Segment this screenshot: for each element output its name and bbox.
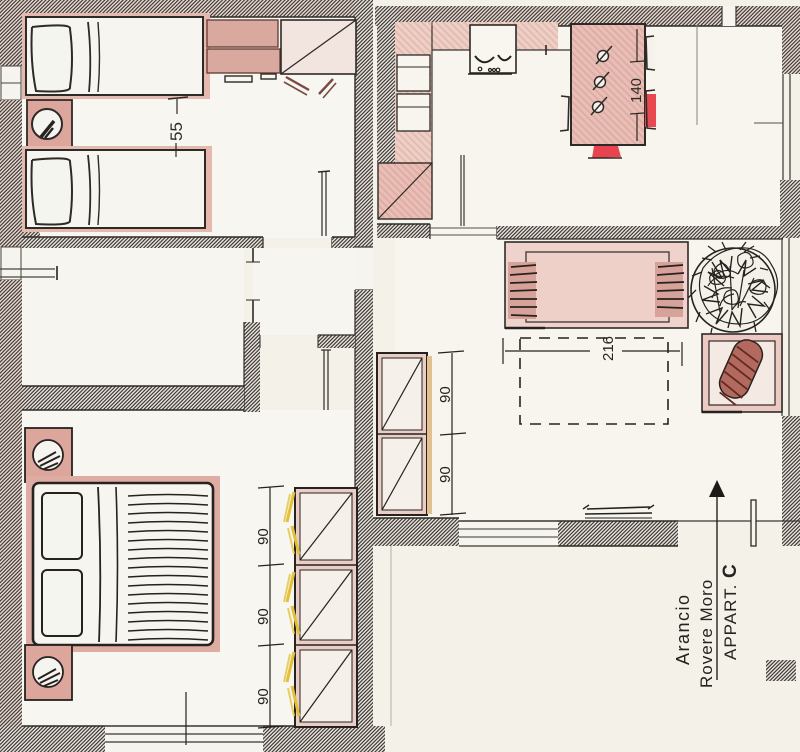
svg-text:APPART. C: APPART. C xyxy=(720,563,741,660)
svg-text:90: 90 xyxy=(255,528,272,545)
svg-text:140: 140 xyxy=(628,78,645,103)
svg-text:90: 90 xyxy=(255,688,272,705)
svg-text:216: 216 xyxy=(600,336,617,361)
svg-text:90: 90 xyxy=(437,466,454,483)
svg-text:Rovere Moro: Rovere Moro xyxy=(697,579,716,688)
svg-text:55: 55 xyxy=(167,122,186,141)
svg-text:90: 90 xyxy=(437,386,454,403)
svg-text:90: 90 xyxy=(255,608,272,625)
svg-text:Arancio: Arancio xyxy=(673,593,693,665)
